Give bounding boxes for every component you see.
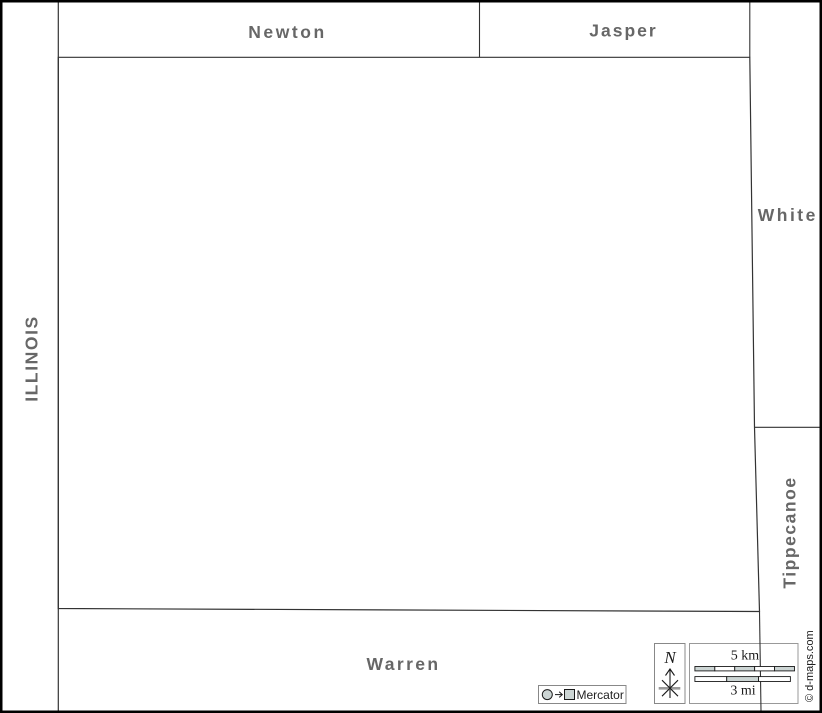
- svg-text:Newton: Newton: [248, 22, 327, 42]
- svg-text:Jasper: Jasper: [589, 21, 657, 41]
- svg-text:Mercator: Mercator: [577, 688, 624, 702]
- svg-text:3 mi: 3 mi: [730, 683, 755, 698]
- svg-text:5 km: 5 km: [731, 649, 760, 664]
- svg-text:Warren: Warren: [367, 654, 441, 674]
- svg-text:White: White: [758, 205, 818, 225]
- svg-text:ILLINOIS: ILLINOIS: [22, 315, 42, 402]
- svg-text:Tippecanoe: Tippecanoe: [780, 476, 800, 588]
- svg-text:N: N: [663, 648, 677, 667]
- svg-text:© d-maps.com: © d-maps.com: [804, 630, 816, 702]
